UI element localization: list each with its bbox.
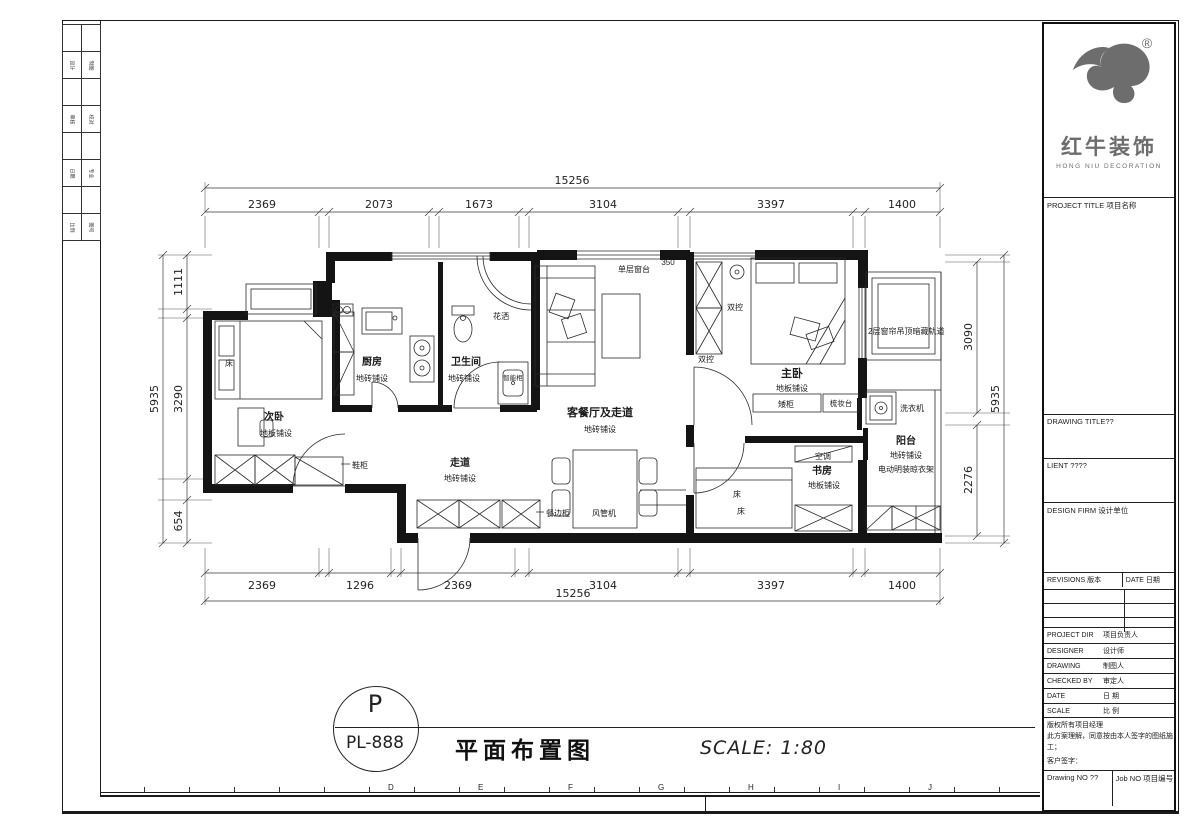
info-en: DATE: [1047, 693, 1103, 700]
ruler-letter-j: J: [928, 783, 932, 792]
label-tile-floor-5: 地砖铺设: [890, 450, 922, 460]
title-block: ® 红牛装饰 HONG NIU DECORATION PROJECT TITLE…: [1042, 22, 1176, 812]
strip-cell-label: 校对: [87, 114, 94, 124]
label-smart-cabinet: 智能柜: [503, 373, 523, 382]
label-bathroom: 卫生间: [451, 355, 481, 368]
label-sill-height: 350: [661, 258, 675, 267]
label-window-sill: 单层窗台: [618, 264, 650, 274]
info-row-project-dir: PROJECT DIR项目负责人: [1044, 628, 1174, 643]
info-en: CHECKED BY: [1047, 678, 1103, 685]
ruler-letter-h: H: [748, 783, 754, 792]
label-wood-floor-2: 地板铺设: [776, 383, 808, 393]
floor-plan-drawing: 15256 2369 2073 1673 3104 3397 1400 2369…: [0, 0, 1200, 828]
dim-bottom-4: 3104: [589, 579, 617, 592]
label-corridor: 走道: [449, 456, 470, 469]
disclaimer-section: 版权所有项目经理 此方案理解，同意按由本人签字的图纸施工； 客户签字：: [1044, 717, 1174, 770]
label-bed-study-2: 床: [737, 506, 745, 516]
label-tile-floor-1: 地砖铺设: [356, 373, 388, 383]
label-air-conditioner: 空调: [815, 451, 831, 461]
dim-top-2: 2073: [365, 198, 393, 211]
info-en: PROJECT DIR: [1047, 632, 1103, 639]
number-section: Drawing NO ?? Job NO 项目编号: [1044, 770, 1174, 806]
label-drying-rack: 电动明装晾衣架: [878, 464, 934, 474]
info-cn: 项目负责人: [1103, 632, 1138, 639]
label-dual-control-1: 双控: [727, 302, 743, 312]
client-label: LIENT ????: [1044, 459, 1174, 470]
label-curtain-track: 2层窗帘吊顶暗藏轨道: [868, 326, 944, 336]
drawing-title-section: DRAWING TITLE??: [1044, 414, 1174, 458]
info-en: SCALE: [1047, 708, 1103, 715]
dim-bottom-1: 2369: [248, 579, 276, 592]
info-row-scale: SCALE比 例: [1044, 703, 1174, 718]
dim-top-5: 3397: [757, 198, 785, 211]
dim-bottom-2: 1296: [346, 579, 374, 592]
label-dual-control-2: 双控: [698, 354, 714, 364]
furniture-secondary-bedroom: [215, 321, 350, 485]
info-row-drawing: DRAWING制图人: [1044, 658, 1174, 673]
dim-left-1: 1111: [172, 268, 185, 296]
label-living-dining: 客餐厅及走道: [566, 405, 633, 419]
strip-cell-label: 日期: [68, 168, 75, 178]
revisions-header: REVISIONS 版本: [1044, 573, 1123, 587]
doors: [293, 362, 752, 590]
drawing-no-label: Drawing NO ??: [1044, 771, 1113, 806]
label-study: 书房: [812, 464, 832, 477]
agreement-line: 此方案理解，同意按由本人签字的图纸施工；: [1047, 732, 1174, 754]
info-cn: 日 期: [1103, 693, 1119, 700]
dim-top-1: 2369: [248, 198, 276, 211]
scale-text: SCALE: 1:80: [700, 737, 827, 759]
dim-right-1: 3090: [962, 323, 975, 351]
strip-cell-label: 专业: [87, 168, 94, 178]
dim-left-total: 5935: [148, 385, 161, 413]
job-no-label: Job NO 项目编号: [1113, 771, 1174, 806]
label-washing-machine: 洗衣机: [900, 403, 924, 413]
info-en: DRAWING: [1047, 663, 1103, 670]
logo-area: ® 红牛装饰 HONG NIU DECORATION: [1044, 24, 1174, 197]
strip-cell-label: 比例: [68, 222, 75, 232]
label-balcony: 阳台: [896, 434, 916, 447]
dim-right-total: 5935: [989, 385, 1002, 413]
dim-left-2: 3290: [172, 385, 185, 413]
project-title-section: PROJECT TITLE 项目名称: [1044, 197, 1174, 414]
ruler-line-thin: [100, 792, 1040, 793]
label-bed-study-1: 床: [733, 489, 741, 499]
strip-cell-label: 图号: [87, 222, 94, 232]
strip-cell-label: 审核: [68, 114, 75, 124]
dim-bottom-5: 3397: [757, 579, 785, 592]
stamp-letter: P: [333, 690, 417, 718]
info-cn: 制图人: [1103, 663, 1124, 670]
client-section: LIENT ????: [1044, 458, 1174, 502]
label-bed-secondary: 床: [225, 358, 233, 368]
dim-right-2: 2276: [962, 466, 975, 494]
walls: [203, 250, 942, 543]
design-firm-label: DESIGN FIRM 设计单位: [1044, 503, 1174, 516]
dim-top-3: 1673: [465, 198, 493, 211]
copyright-line: 版权所有项目经理: [1047, 721, 1174, 732]
project-title-label: PROJECT TITLE 项目名称: [1044, 198, 1174, 211]
info-row-designer: DESIGNER设计师: [1044, 643, 1174, 658]
strip-cell-label: 制图: [87, 60, 94, 70]
dim-top-4: 3104: [589, 198, 617, 211]
info-cn: 比 例: [1103, 708, 1119, 715]
dim-top-6: 1400: [888, 198, 916, 211]
strip-cell-label: 设计: [68, 60, 75, 70]
ruler-line-thick: [100, 795, 1040, 797]
label-master-bedroom: 主卧: [781, 366, 803, 380]
label-low-cabinet: 矮柜: [778, 399, 794, 409]
label-tile-floor-2: 地砖铺设: [448, 373, 480, 383]
dim-bottom-3: 2369: [444, 579, 472, 592]
dim-bottom-total: 15256: [556, 587, 591, 600]
label-shower: 花洒: [493, 311, 509, 321]
label-tile-floor-3: 地砖铺设: [444, 473, 476, 483]
drawing-sheet: 15256 2369 2073 1673 3104 3397 1400 2369…: [0, 0, 1200, 828]
label-duct-ac: 风管机: [592, 508, 616, 518]
registered-mark: ®: [1142, 35, 1153, 51]
side-signature-strip: 设计 制图 审核 校对 日期 专业 比例 图号: [62, 24, 101, 241]
customer-sign-line: 客户签字：: [1047, 757, 1174, 768]
label-secondary-bedroom: 次卧: [264, 410, 284, 423]
label-kitchen: 厨房: [362, 355, 382, 368]
stamp-code: PL-888: [333, 733, 417, 753]
dim-bottom-6: 1400: [888, 579, 916, 592]
frame-top: [62, 20, 1178, 21]
label-wood-floor-1: 地板铺设: [260, 428, 292, 438]
info-row-date: DATE日 期: [1044, 688, 1174, 703]
label-dressing-table: 梳妆台: [830, 398, 853, 408]
design-firm-section: DESIGN FIRM 设计单位: [1044, 502, 1174, 572]
brand-name-cn: 红牛装饰: [1044, 131, 1174, 161]
info-en: DESIGNER: [1047, 648, 1103, 655]
label-shoe-cabinet: 鞋柜: [352, 460, 368, 470]
ruler-letter-f: F: [568, 783, 573, 792]
info-cn: 审定人: [1103, 678, 1124, 685]
label-wood-floor-3: 地板铺设: [808, 480, 840, 490]
revisions-table: REVISIONS 版本 DATE 日期: [1044, 572, 1174, 627]
drawing-title-label: DRAWING TITLE??: [1044, 415, 1174, 426]
info-rows: PROJECT DIR项目负责人 DESIGNER设计师 DRAWING制图人 …: [1044, 627, 1174, 717]
ruler-letter-e: E: [478, 783, 483, 792]
frame-bottom-thick: [62, 811, 1179, 814]
hongniu-bull-logo-icon: ®: [1057, 32, 1161, 124]
sheet-title: 平面布置图: [455, 731, 595, 765]
label-tile-floor-4: 地砖铺设: [584, 424, 616, 434]
ruler-center-divider: [705, 797, 706, 811]
dim-top-total: 15256: [555, 174, 590, 187]
ruler-letter-i: I: [838, 783, 840, 792]
label-sideboard: 餐边柜: [546, 508, 570, 518]
revisions-date-header: DATE 日期: [1123, 573, 1174, 589]
dim-left-3: 654: [172, 511, 185, 532]
frame-right-outer: [1178, 20, 1179, 812]
info-row-checked-by: CHECKED BY审定人: [1044, 673, 1174, 688]
ruler-letter-d: D: [388, 783, 394, 792]
stamp-underline: [335, 727, 1035, 728]
brand-name-en: HONG NIU DECORATION: [1044, 163, 1174, 170]
info-cn: 设计师: [1103, 648, 1124, 655]
ruler-letter-g: G: [658, 783, 664, 792]
